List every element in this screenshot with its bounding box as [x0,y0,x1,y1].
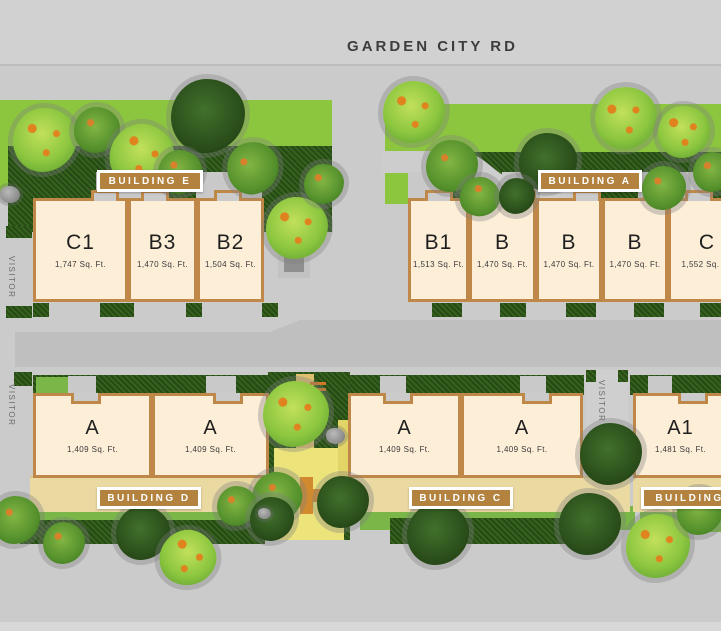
garden-city-road [0,0,721,66]
porch [213,393,243,404]
tree [559,493,621,555]
hedge-stub [33,303,49,317]
unit-card-c-a-1[interactable]: A 1,409 Sq. Ft. [348,393,461,478]
unit-name: B2 [217,232,245,253]
hedge-stub [14,372,32,386]
visitor-label: VISITOR [7,384,16,426]
unit-area: 1,409 Sq. Ft. [185,445,236,454]
porch [214,190,242,201]
unit-card-d-a-2[interactable]: A 1,409 Sq. Ft. [152,393,269,478]
hedge-stub [566,303,596,317]
unit-area: 1,747 Sq. Ft. [55,260,106,269]
unit-card-a-b1[interactable]: B1 1,513 Sq. Ft. [408,198,469,302]
building-e-badge: BUILDING E [97,170,203,192]
porch [383,393,413,404]
hedge-stub [700,303,721,317]
unit-card-d-a-1[interactable]: A 1,409 Sq. Ft. [33,393,152,478]
hedge-stub [586,370,596,382]
unit-name: C [699,232,715,253]
building-b-badge: BUILDING B [641,487,721,509]
unit-area: 1,513 Sq. Ft. [413,260,464,269]
unit-area: 1,470 Sq. Ft. [609,260,660,269]
unit-name: C1 [66,232,95,253]
hedge-stub [186,303,202,317]
unit-name: A1 [667,418,693,438]
hedge-stub [262,303,278,317]
hedge-stub [500,303,526,317]
road-name-label: GARDEN CITY RD [330,38,535,55]
unit-name: A [515,418,529,438]
unit-card-e-c1[interactable]: C1 1,747 Sq. Ft. [33,198,128,302]
hedge-stub [100,303,134,317]
hedge-stub [618,370,628,382]
unit-area: 1,470 Sq. Ft. [137,260,188,269]
hedge-stub [6,226,32,238]
tree [407,503,469,565]
rock [326,428,345,444]
unit-name: B [627,232,642,253]
hedge-stub [432,303,462,317]
unit-card-a-b-3[interactable]: B 1,470 Sq. Ft. [602,198,668,302]
building-a-badge: BUILDING A [538,170,642,192]
building-d-badge: BUILDING D [97,487,201,509]
unit-area: 1,409 Sq. Ft. [67,445,118,454]
bottom-sidewalk [0,622,721,631]
unit-area: 1,470 Sq. Ft. [543,260,594,269]
building-c-badge: BUILDING C [409,487,513,509]
unit-card-e-b2[interactable]: B2 1,504 Sq. Ft. [197,198,264,302]
unit-area: 1,552 Sq. Ft. [681,260,721,269]
internal-road [0,314,721,367]
tree [43,522,85,564]
unit-card-a-b-2[interactable]: B 1,470 Sq. Ft. [536,198,602,302]
visitor-label: VISITOR [597,380,606,422]
unit-name: B [561,232,576,253]
tree [693,152,721,192]
porch [522,393,552,404]
visitor-label: VISITOR [7,256,16,298]
unit-card-c-a-2[interactable]: A 1,409 Sq. Ft. [461,393,583,478]
unit-area: 1,470 Sq. Ft. [477,260,528,269]
tree [304,164,344,204]
unit-name: B1 [425,232,453,253]
unit-name: A [85,418,99,438]
hedge-bottom-right [630,375,721,395]
unit-area: 1,481 Sq. Ft. [655,445,706,454]
porch [678,393,708,404]
rock [258,508,271,519]
unit-name: B3 [149,232,177,253]
unit-card-e-b3[interactable]: B3 1,470 Sq. Ft. [128,198,197,302]
unit-card-a-c[interactable]: C 1,552 Sq. Ft. [668,198,721,302]
porch [71,393,101,404]
unit-card-b-a1[interactable]: A1 1,481 Sq. Ft. [633,393,721,478]
tree [266,197,328,259]
site-plan: GARDEN CITY RD [0,0,721,631]
hedge-stub [6,306,32,318]
unit-area: 1,409 Sq. Ft. [496,445,547,454]
hedge-stub [634,303,664,317]
rock [0,186,20,203]
unit-name: B [495,232,510,253]
unit-name: A [203,418,217,438]
unit-area: 1,504 Sq. Ft. [205,260,256,269]
unit-name: A [397,418,411,438]
unit-area: 1,409 Sq. Ft. [379,445,430,454]
